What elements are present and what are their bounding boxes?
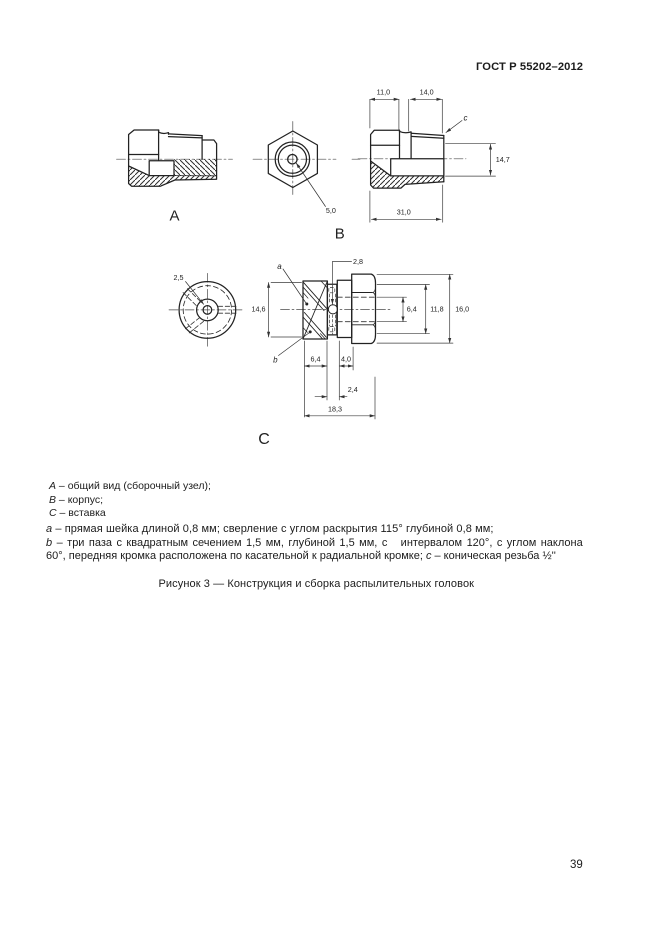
svg-text:14,6: 14,6 <box>252 304 266 313</box>
svg-text:6,4: 6,4 <box>407 305 417 314</box>
svg-text:C: C <box>258 431 270 448</box>
svg-text:a: a <box>277 262 282 271</box>
svg-text:11,8: 11,8 <box>430 305 443 314</box>
svg-text:6,4: 6,4 <box>311 355 321 364</box>
svg-text:2,4: 2,4 <box>348 385 358 394</box>
svg-text:2,8: 2,8 <box>353 257 363 266</box>
svg-text:c: c <box>464 114 468 123</box>
svg-text:B: B <box>335 226 345 243</box>
svg-text:5,0: 5,0 <box>326 206 336 215</box>
svg-text:16,0: 16,0 <box>455 305 469 314</box>
svg-text:11,0: 11,0 <box>377 88 390 97</box>
svg-text:b: b <box>273 356 278 365</box>
svg-text:14,0: 14,0 <box>420 88 434 97</box>
svg-text:31,0: 31,0 <box>397 207 411 216</box>
svg-text:2,5: 2,5 <box>174 273 184 282</box>
svg-text:4,0: 4,0 <box>341 355 351 364</box>
svg-text:14,7: 14,7 <box>496 155 510 164</box>
svg-text:A: A <box>169 208 179 225</box>
svg-text:18,3: 18,3 <box>328 405 342 414</box>
